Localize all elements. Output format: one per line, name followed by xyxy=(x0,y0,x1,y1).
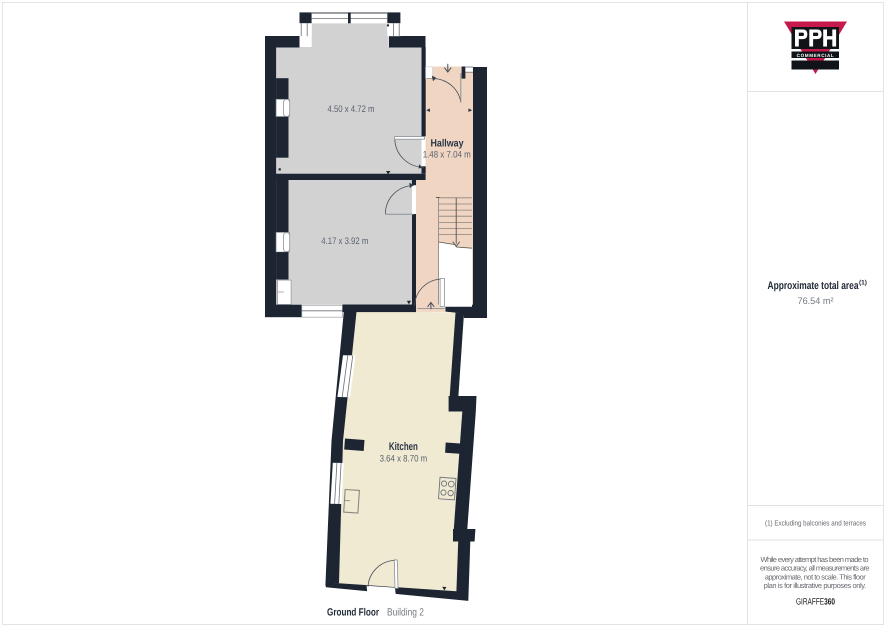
svg-text:(1): (1) xyxy=(859,280,867,287)
svg-text:plan is for illustrative purpo: plan is for illustrative purposes only. xyxy=(764,581,867,590)
svg-text:approximate, not to scale. Thi: approximate, not to scale. This floor xyxy=(765,572,867,581)
svg-text:4.17 x 3.92 m: 4.17 x 3.92 m xyxy=(321,236,368,247)
svg-text:4.50 x 4.72 m: 4.50 x 4.72 m xyxy=(328,104,375,115)
svg-text:GIRAFFE360: GIRAFFE360 xyxy=(796,597,835,607)
svg-text:Approximate total area: Approximate total area xyxy=(768,280,860,292)
svg-text:(1) Excluding balconies and te: (1) Excluding balconies and terraces xyxy=(765,519,866,528)
svg-text:Building 2: Building 2 xyxy=(387,607,424,619)
svg-text:Ground Floor: Ground Floor xyxy=(327,607,379,619)
svg-text:COMMERCIAL: COMMERCIAL xyxy=(797,53,835,58)
svg-text:ensure accuracy, all measureme: ensure accuracy, all measurements are xyxy=(760,564,870,573)
svg-text:Kitchen: Kitchen xyxy=(389,441,418,453)
svg-text:76.54 m²: 76.54 m² xyxy=(798,296,834,307)
svg-text:While every attempt has been m: While every attempt has been made to xyxy=(761,555,869,564)
svg-text:1.48 x 7.04 m: 1.48 x 7.04 m xyxy=(423,149,471,160)
svg-text:3.64 x 8.70 m: 3.64 x 8.70 m xyxy=(380,453,428,464)
svg-text:Hallway: Hallway xyxy=(431,138,464,150)
